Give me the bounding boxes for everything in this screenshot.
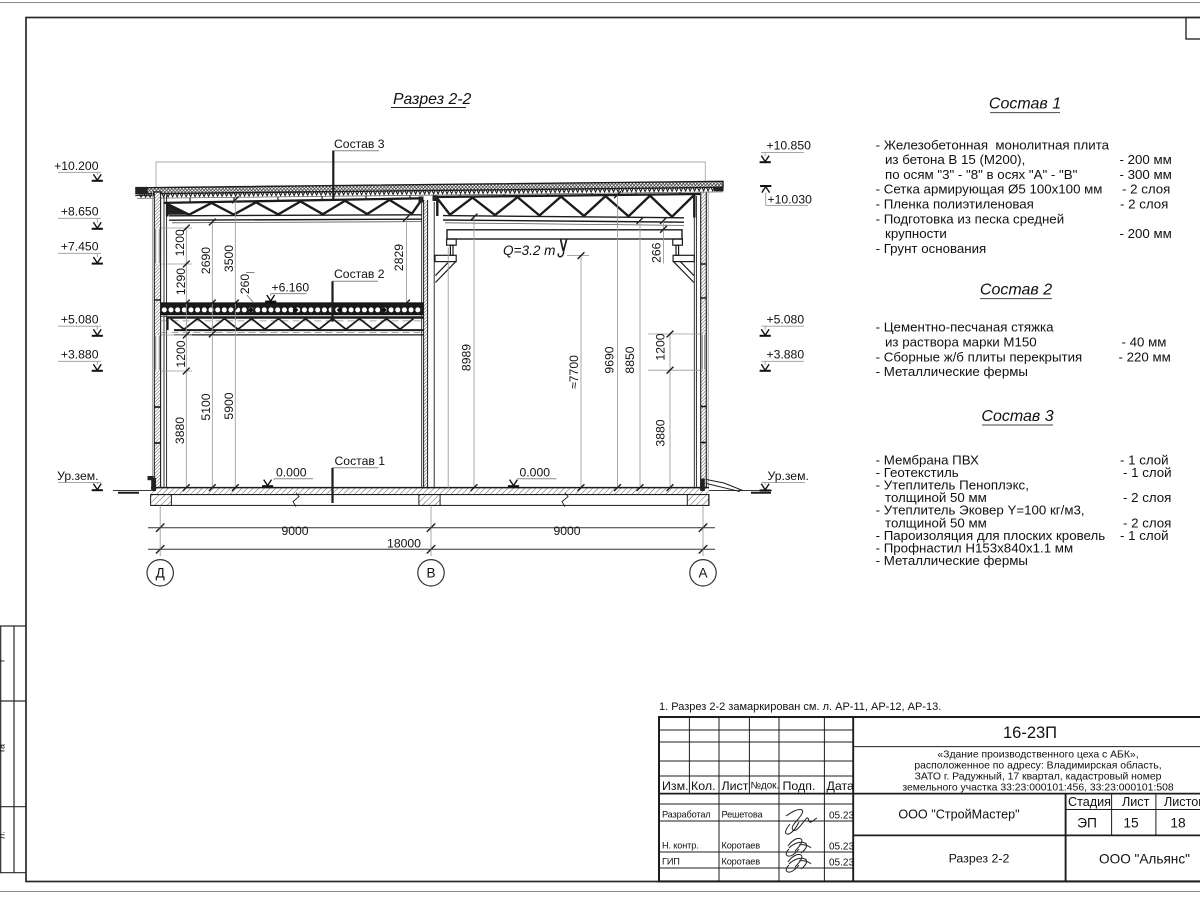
svg-text:из раствора марки М150: из раствора марки М150 bbox=[885, 334, 1037, 349]
svg-text:18: 18 bbox=[1170, 816, 1186, 831]
svg-text:Q=3.2 т: Q=3.2 т bbox=[503, 243, 556, 258]
svg-text:- 2 слоя: - 2 слоя bbox=[1120, 197, 1168, 212]
svg-text:А: А bbox=[698, 566, 707, 581]
svg-text:«Здание производственного цеха: «Здание производственного цеха с АБК», bbox=[937, 750, 1138, 761]
svg-text:8850: 8850 bbox=[623, 346, 637, 373]
svg-text:9000: 9000 bbox=[553, 524, 580, 538]
svg-text:- Металлические фермы: - Металлические фермы bbox=[876, 364, 1028, 379]
svg-text:0.000: 0.000 bbox=[276, 465, 307, 479]
svg-text:земельного участка 33:23:00010: земельного участка 33:23:000101:456, 33:… bbox=[902, 783, 1174, 794]
svg-text:расположенное по адресу: Влади: расположенное по адресу: Владимирская об… bbox=[914, 760, 1161, 772]
svg-text:≈7700: ≈7700 bbox=[567, 355, 581, 389]
svg-text:1290: 1290 bbox=[174, 268, 188, 295]
svg-text:- 2 слоя: - 2 слоя bbox=[1123, 490, 1171, 505]
svg-text:Лист: Лист bbox=[1122, 795, 1150, 809]
svg-text:05.23: 05.23 bbox=[829, 858, 854, 869]
svg-text:+10.850: +10.850 bbox=[767, 139, 812, 153]
svg-text:Состав 1: Состав 1 bbox=[335, 454, 386, 468]
svg-text:- 220 мм: - 220 мм bbox=[1119, 349, 1171, 364]
svg-text:5100: 5100 bbox=[199, 393, 213, 420]
svg-text:- 200 мм: - 200 мм bbox=[1120, 152, 1172, 167]
svg-text:- 2 слоя: - 2 слоя bbox=[1122, 182, 1170, 197]
svg-text:т: т bbox=[0, 659, 7, 663]
svg-text:из бетона В 15 (М200),: из бетона В 15 (М200), bbox=[885, 152, 1025, 167]
svg-text:+7.450: +7.450 bbox=[61, 240, 99, 254]
svg-text:+6.160: +6.160 bbox=[272, 280, 310, 294]
svg-text:- Подготовка из песка средней: - Подготовка из песка средней bbox=[876, 211, 1065, 226]
svg-text:05.23: 05.23 bbox=[829, 811, 854, 822]
svg-text:- Пленка полиэтиленовая: - Пленка полиэтиленовая bbox=[876, 197, 1034, 212]
svg-text:ГИП: ГИП bbox=[662, 857, 680, 867]
svg-text:Коротаев: Коротаев bbox=[722, 841, 761, 851]
svg-text:+5.080: +5.080 bbox=[767, 313, 805, 327]
svg-text:Стадия: Стадия bbox=[1068, 795, 1111, 809]
svg-text:16-23П: 16-23П bbox=[1003, 724, 1057, 742]
svg-text:- 300 мм: - 300 мм bbox=[1120, 167, 1172, 182]
svg-text:+3.880: +3.880 bbox=[61, 348, 99, 362]
svg-text:ЗАТО г. Радужный, 17 квартал,: ЗАТО г. Радужный, 17 квартал, кадастровы… bbox=[915, 772, 1162, 783]
svg-text:+3.880: +3.880 bbox=[767, 348, 805, 362]
svg-text:ЭП: ЭП bbox=[1077, 816, 1097, 831]
svg-text:9690: 9690 bbox=[603, 346, 617, 373]
svg-text:Ур.зем.: Ур.зем. bbox=[768, 469, 809, 483]
svg-text:Состав 3: Состав 3 bbox=[334, 137, 385, 151]
svg-text:0.000: 0.000 bbox=[520, 465, 551, 479]
svg-text:8989: 8989 bbox=[460, 344, 474, 371]
svg-text:1200: 1200 bbox=[174, 340, 188, 367]
svg-text:л.: л. bbox=[0, 831, 7, 839]
svg-text:по осям "3" - "8" в осях "А" -: по осям "3" - "8" в осях "А" - "В" bbox=[885, 167, 1078, 182]
svg-text:Дата: Дата bbox=[827, 779, 855, 793]
svg-text:Состав 3: Состав 3 bbox=[981, 408, 1053, 425]
svg-text:Разрез 2-2: Разрез 2-2 bbox=[393, 91, 471, 108]
svg-text:та: та bbox=[0, 744, 7, 753]
svg-text:+8.650: +8.650 bbox=[61, 205, 99, 219]
svg-text:2690: 2690 bbox=[199, 247, 213, 274]
svg-text:Состав 1: Состав 1 bbox=[989, 96, 1061, 113]
svg-text:- Сетка армирующая Ø5 100х100: - Сетка армирующая Ø5 100х100 мм bbox=[876, 182, 1103, 197]
svg-text:Разрез 2-2: Разрез 2-2 bbox=[949, 852, 1010, 866]
svg-text:Н. контр.: Н. контр. bbox=[662, 841, 699, 851]
svg-text:- Металлические фермы: - Металлические фермы bbox=[876, 553, 1028, 568]
svg-text:+5.080: +5.080 bbox=[61, 313, 99, 327]
svg-text:Состав 2: Состав 2 bbox=[334, 267, 385, 281]
svg-text:1200: 1200 bbox=[173, 229, 187, 256]
svg-text:3880: 3880 bbox=[654, 419, 668, 446]
svg-text:Ур.зем.: Ур.зем. bbox=[57, 469, 98, 483]
svg-text:260: 260 bbox=[238, 274, 252, 295]
svg-text:В: В bbox=[426, 566, 435, 581]
svg-text:+10.030: +10.030 bbox=[768, 192, 813, 206]
svg-text:05.23: 05.23 bbox=[829, 842, 854, 853]
svg-text:- Железобетонная монолитная п: - Железобетонная монолитная плита bbox=[876, 137, 1110, 152]
svg-text:- 40 мм: - 40 мм bbox=[1122, 334, 1167, 349]
svg-text:- 1 слой: - 1 слой bbox=[1123, 465, 1172, 480]
svg-text:Д: Д bbox=[156, 566, 165, 581]
svg-text:Листов: Листов bbox=[1164, 795, 1200, 809]
svg-text:- 1 слой: - 1 слой bbox=[1120, 528, 1169, 543]
svg-text:Решетова: Решетова bbox=[722, 810, 764, 820]
svg-text:- 200 мм: - 200 мм bbox=[1120, 226, 1172, 241]
svg-text:- Грунт основания: - Грунт основания bbox=[876, 241, 987, 256]
svg-text:2829: 2829 bbox=[392, 244, 406, 271]
svg-text:крупности: крупности bbox=[885, 226, 947, 241]
svg-text:ООО "Альянс": ООО "Альянс" bbox=[1099, 852, 1190, 867]
svg-text:Лист: Лист bbox=[722, 779, 749, 793]
svg-text:3500: 3500 bbox=[222, 245, 236, 272]
svg-text:- Цементно-песчаная стяжка: - Цементно-песчаная стяжка bbox=[876, 320, 1054, 335]
svg-text:3880: 3880 bbox=[173, 417, 187, 444]
svg-text:Состав 2: Состав 2 bbox=[980, 282, 1052, 299]
svg-text:ООО "СтройМастер": ООО "СтройМастер" bbox=[898, 808, 1019, 822]
svg-text:18000: 18000 bbox=[387, 536, 421, 550]
svg-text:5900: 5900 bbox=[222, 392, 236, 419]
svg-text:Изм.: Изм. bbox=[662, 779, 689, 793]
svg-text:15: 15 bbox=[1123, 816, 1139, 831]
svg-text:266: 266 bbox=[650, 242, 664, 263]
svg-text:+10.200: +10.200 bbox=[54, 159, 99, 173]
svg-text:Разработал: Разработал bbox=[662, 810, 711, 820]
svg-text:9000: 9000 bbox=[281, 524, 308, 538]
svg-text:- Сборные ж/б плиты перекрытия: - Сборные ж/б плиты перекрытия bbox=[876, 349, 1083, 364]
svg-text:Кол.: Кол. bbox=[691, 779, 716, 793]
svg-text:Подп.: Подп. bbox=[783, 779, 816, 793]
svg-text:Коротаев: Коротаев bbox=[722, 857, 761, 867]
svg-text:1200: 1200 bbox=[654, 333, 668, 360]
svg-text:№док.: №док. bbox=[751, 781, 780, 792]
svg-text:1. Разрез 2-2 замаркирован см.: 1. Разрез 2-2 замаркирован см. л. АР-11,… bbox=[659, 701, 941, 713]
